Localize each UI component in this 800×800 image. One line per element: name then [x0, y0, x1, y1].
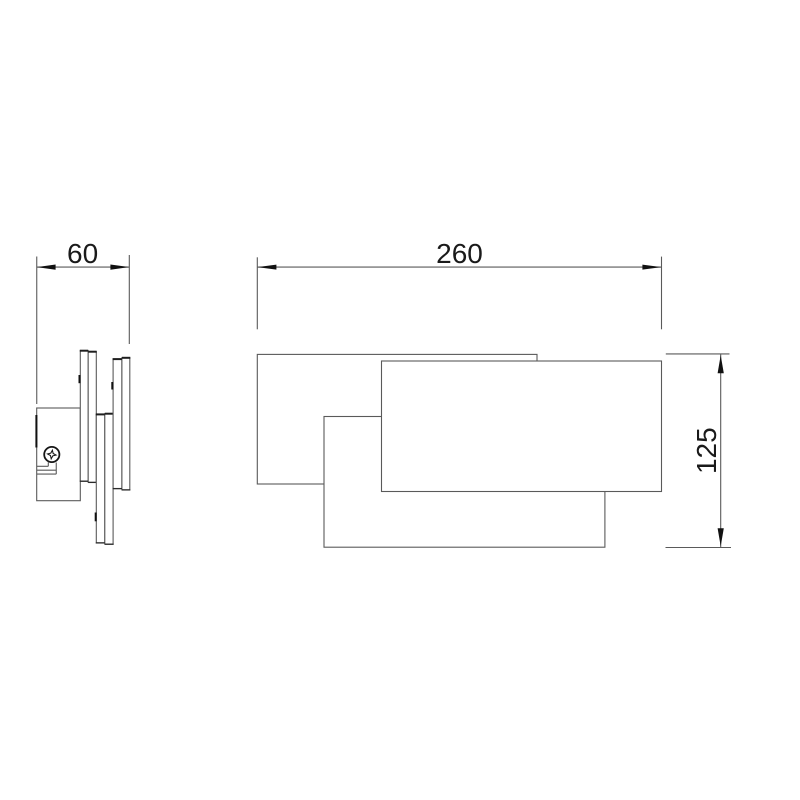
- svg-text:60: 60: [67, 238, 98, 269]
- svg-text:260: 260: [436, 238, 483, 269]
- svg-text:125: 125: [691, 427, 722, 474]
